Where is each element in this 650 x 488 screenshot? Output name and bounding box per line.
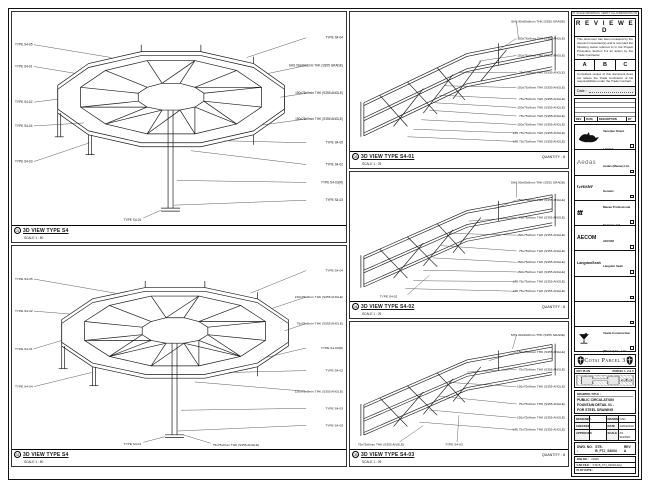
scale-value: AS SHOWN: [619, 430, 636, 440]
dwg-no-value: STE-B_FTJ_S4004: [595, 445, 622, 453]
party-name: Yeade Construction (Macau) Co., Ltd.: [603, 331, 630, 353]
checked-value: -: [590, 423, 607, 430]
callout-label: 150x75x9mm THK (S355 ANGLE): [517, 53, 565, 57]
isometric-structure-drawing: TYPE S4-05 TYPE S4-02 TYPE S4-01 TYPE S4…: [12, 246, 346, 448]
view-title: 3D VIEW TYPE S4-01: [361, 154, 414, 160]
callout-label: L75 75x75x6mm THK (S355 ANGLE): [513, 428, 565, 432]
callout-label: TYPE S4-01: [15, 64, 33, 68]
title-block: DO NOT SCALE DRAWINGS. VERIFY ALL DIMENS…: [571, 11, 639, 477]
party-name: Gensler: [603, 189, 614, 193]
status-option-a: A: [575, 60, 595, 70]
beam-assembly-drawing: SHS 90x90x8mm THK (S355 GRADE) 150x75x9m…: [350, 322, 568, 448]
dwg-number-row: DWG. NO. : STE-B_FTJ_S4004 REV A: [574, 442, 636, 455]
review-status-options: A B C: [575, 59, 635, 71]
view-panel-1: TYPE S4-05 TYPE S4-01 TYPE S4-02 TYPE S4…: [11, 11, 347, 243]
view-title: 3D VIEW TYPE S4-02: [361, 304, 414, 310]
view-title: 3D VIEW TYPE S4-03: [361, 452, 414, 458]
cad-file-value: STE-B_FTJ_S4004.dwg: [593, 464, 622, 467]
drawing-title-section: DRAWING TITLE : PUBLIC CIRCULATION FOUNT…: [574, 390, 636, 414]
crest-icon: [577, 355, 584, 366]
structure-lines: [55, 45, 285, 211]
callout-label: TYPE S4-03: [15, 160, 33, 164]
view-ref-bubble: 04: [352, 303, 359, 310]
callout-label: SHS 90x90x8mm THK (S355 GRADE): [511, 333, 565, 337]
view-ref-bubble: 03: [352, 153, 359, 160]
view-title-bar: 01 3D VIEW TYPE S4: [12, 225, 346, 234]
callout-label: TYPE S4-04: [15, 385, 33, 389]
view-title-bar: 05 3D VIEW TYPE S4-03 QUANTITY : 8: [350, 449, 568, 458]
callout-label: 75x75x6mm THK (S355 ANGLE): [519, 216, 565, 220]
plot-date-label: PLOT DATE :: [577, 469, 594, 472]
callout-label: 150x75x9mm THK (S355 ANGLE): [517, 385, 565, 389]
party-row-venetian: Venetian Orient Limited: [575, 125, 635, 150]
party-name: Langdon Seah: [603, 264, 623, 268]
approved-value: -: [590, 430, 607, 440]
view-title-bar: 04 3D VIEW TYPE S4-02 QUANTITY : 8: [350, 301, 568, 310]
callout-label: TYPE S4-03(R): [321, 180, 343, 184]
callout-label: 75x75x6mm THK (S355 ANGLE): [519, 114, 565, 118]
designed-label: DESIGNED: [575, 416, 590, 423]
view-title-bar: 03 3D VIEW TYPE S4-01 QUANTITY : 8: [350, 151, 568, 160]
consultant-list: Venetian Orient Limited Aedas Aedas (Mac…: [574, 124, 636, 352]
party-row-aecom: AECOM AECOM: [575, 226, 635, 251]
callout-label: 75x75x6mm THK (S355 ANGLE): [519, 71, 565, 75]
callout-label: TYPE S4-02: [380, 295, 398, 299]
rev-value: A: [624, 449, 626, 453]
callout-label: TYPE S4-04: [15, 124, 33, 128]
review-stamp: R E V I E W E D This document has been r…: [574, 18, 636, 96]
view-quantity: QUANTITY : 8: [542, 305, 565, 309]
status-option-c: C: [616, 60, 635, 70]
view-title-bar: 02 3D VIEW TYPE S4: [12, 449, 346, 458]
mps-logo: ttt: [577, 208, 602, 217]
key-plan-label: KEY PLAN: [577, 370, 591, 373]
party-row-empty: [575, 277, 635, 302]
job-number-value: 21026: [591, 458, 598, 461]
view-panel-3: SHS 90x90x8mm THK (S355 GRADE) 150x75x9m…: [349, 11, 569, 169]
beam-assembly-drawing: SHS 90x90x8mm THK (S355 GRADE) 150x75x9m…: [350, 172, 568, 300]
callout-label: TYPE S4-05: [325, 141, 343, 145]
callout-label: 75x75x6mm THK (S355 ANGLE): [519, 249, 565, 253]
callout-label: SHS 90x90x8mm THK (S355 GRADE): [289, 63, 343, 67]
callout-label: L75 75x75x6mm THK (S355 ANGLE): [513, 140, 565, 144]
drawn-value: CAD: [619, 416, 636, 423]
party-name: Venetian Orient Limited: [603, 129, 624, 151]
callout-label: 150x75x9mm THK (S355 ANGLE): [517, 198, 565, 202]
date-label: Date :: [577, 89, 587, 93]
drawing-sheet: TYPE S4-05 TYPE S4-01 TYPE S4-02 TYPE S4…: [8, 8, 642, 480]
signoff-checkbox: [630, 220, 634, 224]
structure-lines: [59, 281, 289, 438]
key-plan-parcel: PARCEL 1, 2 & 3: [613, 370, 634, 373]
view-scale: SCALE 1 : 25: [362, 460, 381, 464]
date-fill-line: [589, 89, 633, 93]
callout-label: 150x75x9mm THK (S355 ANGLE): [295, 389, 343, 393]
callout-label: L75 75x75x6mm THK (S355 ANGLE): [513, 289, 565, 293]
callout-label: TYPE S4-02: [325, 163, 343, 167]
project-name: Cotai Parcel 3: [584, 358, 625, 364]
contractor-logo-icon: [577, 332, 602, 346]
callout-label: TYPE S4-03: [325, 406, 343, 410]
edge-note: DO NOT SCALE DRAWINGS. VERIFY ALL DIMENS…: [572, 12, 638, 16]
party-row-aedas: Aedas Aedas (Macau) Ltd.: [575, 150, 635, 175]
date-value: 14/04/2010: [619, 423, 636, 430]
signoff-checkbox: [630, 296, 634, 300]
key-plan: KEY PLAN PARCEL 1, 2 & 3: [574, 368, 636, 388]
callout-label: TYPE S4-05: [15, 43, 33, 47]
callout-label: TYPE S4-05: [15, 277, 33, 281]
revision-col-date: DATE: [585, 117, 598, 121]
review-stamp-paragraph: This document has been reviewed by the r…: [577, 38, 633, 57]
callout-label: 75x75x6mm THK (S355 ANGLE): [519, 97, 565, 101]
aecom-logo: AECOM: [577, 235, 602, 241]
view-panel-4: SHS 90x90x8mm THK (S355 GRADE) 150x75x9m…: [349, 171, 569, 319]
view-ref-bubble: 01: [14, 227, 21, 234]
revision-col-rev: REV: [575, 117, 585, 121]
leader-lines: [34, 38, 306, 218]
callout-label: 150x75x9mm THK (S355 ANGLE): [517, 36, 565, 40]
view-quantity: QUANTITY : 8: [542, 155, 565, 159]
callout-label: 150x75x9mm THK (S355 ANGLE): [517, 233, 565, 237]
view-title: 3D VIEW TYPE S4: [23, 228, 69, 234]
view-panel-5: SHS 90x90x8mm THK (S355 GRADE) 150x75x9m…: [349, 321, 569, 467]
leader-lines: [405, 183, 516, 295]
callout-label: 150x75x9mm THK (S355 ANGLE): [517, 122, 565, 126]
file-info-rows: JOB NO. :21026 CAD FILE :STE-B_FTJ_S4004…: [574, 456, 636, 474]
signoff-checkbox: [630, 346, 634, 350]
callout-label: TYPE S4-01: [124, 218, 142, 222]
callout-label: 150x75x9mm THK (S355 ANGLE): [517, 86, 565, 90]
callout-label: TYPE S4-02: [15, 309, 33, 313]
callout-label: 75x75x6mm THK (S355 ANGLE): [519, 368, 565, 372]
key-plan-map: [576, 375, 634, 386]
view-quantity: QUANTITY : 8: [542, 453, 565, 457]
callout-label: 150x75x9mm THK (S355 ANGLE): [517, 350, 565, 354]
callout-label: 150x75x9mm THK (S355 ANGLE): [295, 295, 343, 299]
view-scale: SCALE 1 : 25: [362, 162, 381, 166]
scale-label: SCALE: [607, 430, 619, 440]
view-scale: SCALE 1 : 25: [362, 312, 381, 316]
status-option-b: B: [595, 60, 615, 70]
drawing-title-line: FOR STEEL DRAWING: [577, 408, 633, 413]
beam-assembly-drawing: SHS 90x90x8mm THK (S355 GRADE) 150x75x9m…: [350, 12, 568, 150]
callout-label: TYPE S4-01: [15, 347, 33, 351]
callout-label: 150x75x9mm THK (S355 ANGLE): [517, 105, 565, 109]
signoff-checkbox: [630, 245, 634, 249]
callout-label: 75x75x6mm THK (S355 ANGLE): [519, 402, 565, 406]
gensler-logo: Gensler: [577, 185, 602, 190]
cad-file-label: CAD FILE :: [577, 464, 591, 467]
review-stamp-paragraph: Consultant review of this document does …: [577, 73, 633, 85]
callout-label: TYPE S4-01: [124, 442, 142, 446]
signoff-checkbox: [630, 170, 634, 174]
callout-label: 75x75x6mm THK (S355 ANGLE): [213, 443, 259, 447]
drawn-label: DRAWN: [607, 416, 619, 423]
designed-value: -: [590, 416, 607, 423]
callout-label: SHS 90x90x8mm THK (S355 GRADE): [511, 19, 565, 23]
venetian-lion-logo-icon: [577, 131, 602, 143]
callout-label: 150x75x9mm THK (S355 ANGLE): [295, 117, 343, 121]
callout-label: TYPE S4-05: [325, 423, 343, 427]
view-ref-bubble: 02: [14, 451, 21, 458]
party-name: Macau Professional Services Ltd.: [603, 205, 630, 227]
callout-label: 150x75x9mm THK (S355 ANGLE): [517, 416, 565, 420]
approved-label: APPROVED: [575, 430, 590, 440]
langdonseah-logo: LangdonSeah: [577, 261, 602, 265]
callout-label: L75 75x75x6mm THK (S355 ANGLE): [513, 131, 565, 135]
view-panel-2: TYPE S4-05 TYPE S4-02 TYPE S4-01 TYPE S4…: [11, 245, 347, 467]
view-ref-bubble: 05: [352, 451, 359, 458]
signature-table: DESIGNED - DRAWN CAD CHECKED - DATE 14/0…: [574, 415, 636, 441]
view-scale: SCALE 1 : 50: [24, 236, 43, 240]
dwg-no-label: DWG. NO. :: [577, 445, 593, 453]
callout-label: TYPE S4-02: [325, 369, 343, 373]
callout-label: TYPE S4-03: [445, 443, 463, 447]
callout-label: L75 75x75x6mm THK (S355 ANGLE): [513, 280, 565, 284]
review-stamp-title: R E V I E W E D: [575, 19, 635, 37]
party-name: Aedas (Macau) Ltd.: [603, 164, 630, 168]
signoff-checkbox: [630, 144, 634, 148]
view-scale: SCALE 1 : 50: [24, 460, 43, 464]
callout-label: TYPE S4-04: [325, 36, 343, 40]
party-row-mps: ttt Macau Professional Services Ltd.: [575, 201, 635, 226]
job-number-label: JOB NO. :: [577, 458, 590, 461]
structure-lines: [361, 344, 555, 436]
view-title: 3D VIEW TYPE S4: [23, 452, 69, 458]
callout-label: TYPE S4-03(R): [321, 346, 343, 350]
aedas-logo: Aedas: [577, 160, 602, 166]
callout-label: 150x75x9mm THK (S355 ANGLE): [517, 270, 565, 274]
callout-label: 150x75x9mm THK (S355 ANGLE): [517, 260, 565, 264]
party-row-langdonseah: LangdonSeah Langdon Seah: [575, 251, 635, 276]
callout-label: SHS 90x90x8mm THK (S355 GRADE): [511, 181, 565, 185]
callout-label: TYPE S4-03: [325, 198, 343, 202]
signoff-checkbox: [630, 270, 634, 274]
leader-lines: [407, 21, 518, 141]
checked-label: CHECKED: [575, 423, 590, 430]
callout-label: 150x75x9mm THK (S355 ANGLE): [295, 91, 343, 95]
party-name: AECOM: [603, 239, 614, 243]
callout-label: TYPE S4-02: [15, 100, 33, 104]
party-row-contractor: Yeade Construction (Macau) Co., Ltd.: [575, 327, 635, 351]
isometric-structure-drawing: TYPE S4-05 TYPE S4-01 TYPE S4-02 TYPE S4…: [12, 12, 346, 224]
review-date-row: Date :: [575, 86, 635, 95]
date-label: DATE: [607, 423, 619, 430]
drawing-title-label: DRAWING TITLE :: [577, 392, 633, 398]
leader-lines: [34, 271, 306, 444]
callout-label: 75x75x6mm THK (S355 ANGLE): [358, 443, 404, 447]
callout-label: 75x75x6mm THK (S355 ANGLE): [297, 321, 343, 325]
callout-label: TYPE S4-04: [325, 269, 343, 273]
